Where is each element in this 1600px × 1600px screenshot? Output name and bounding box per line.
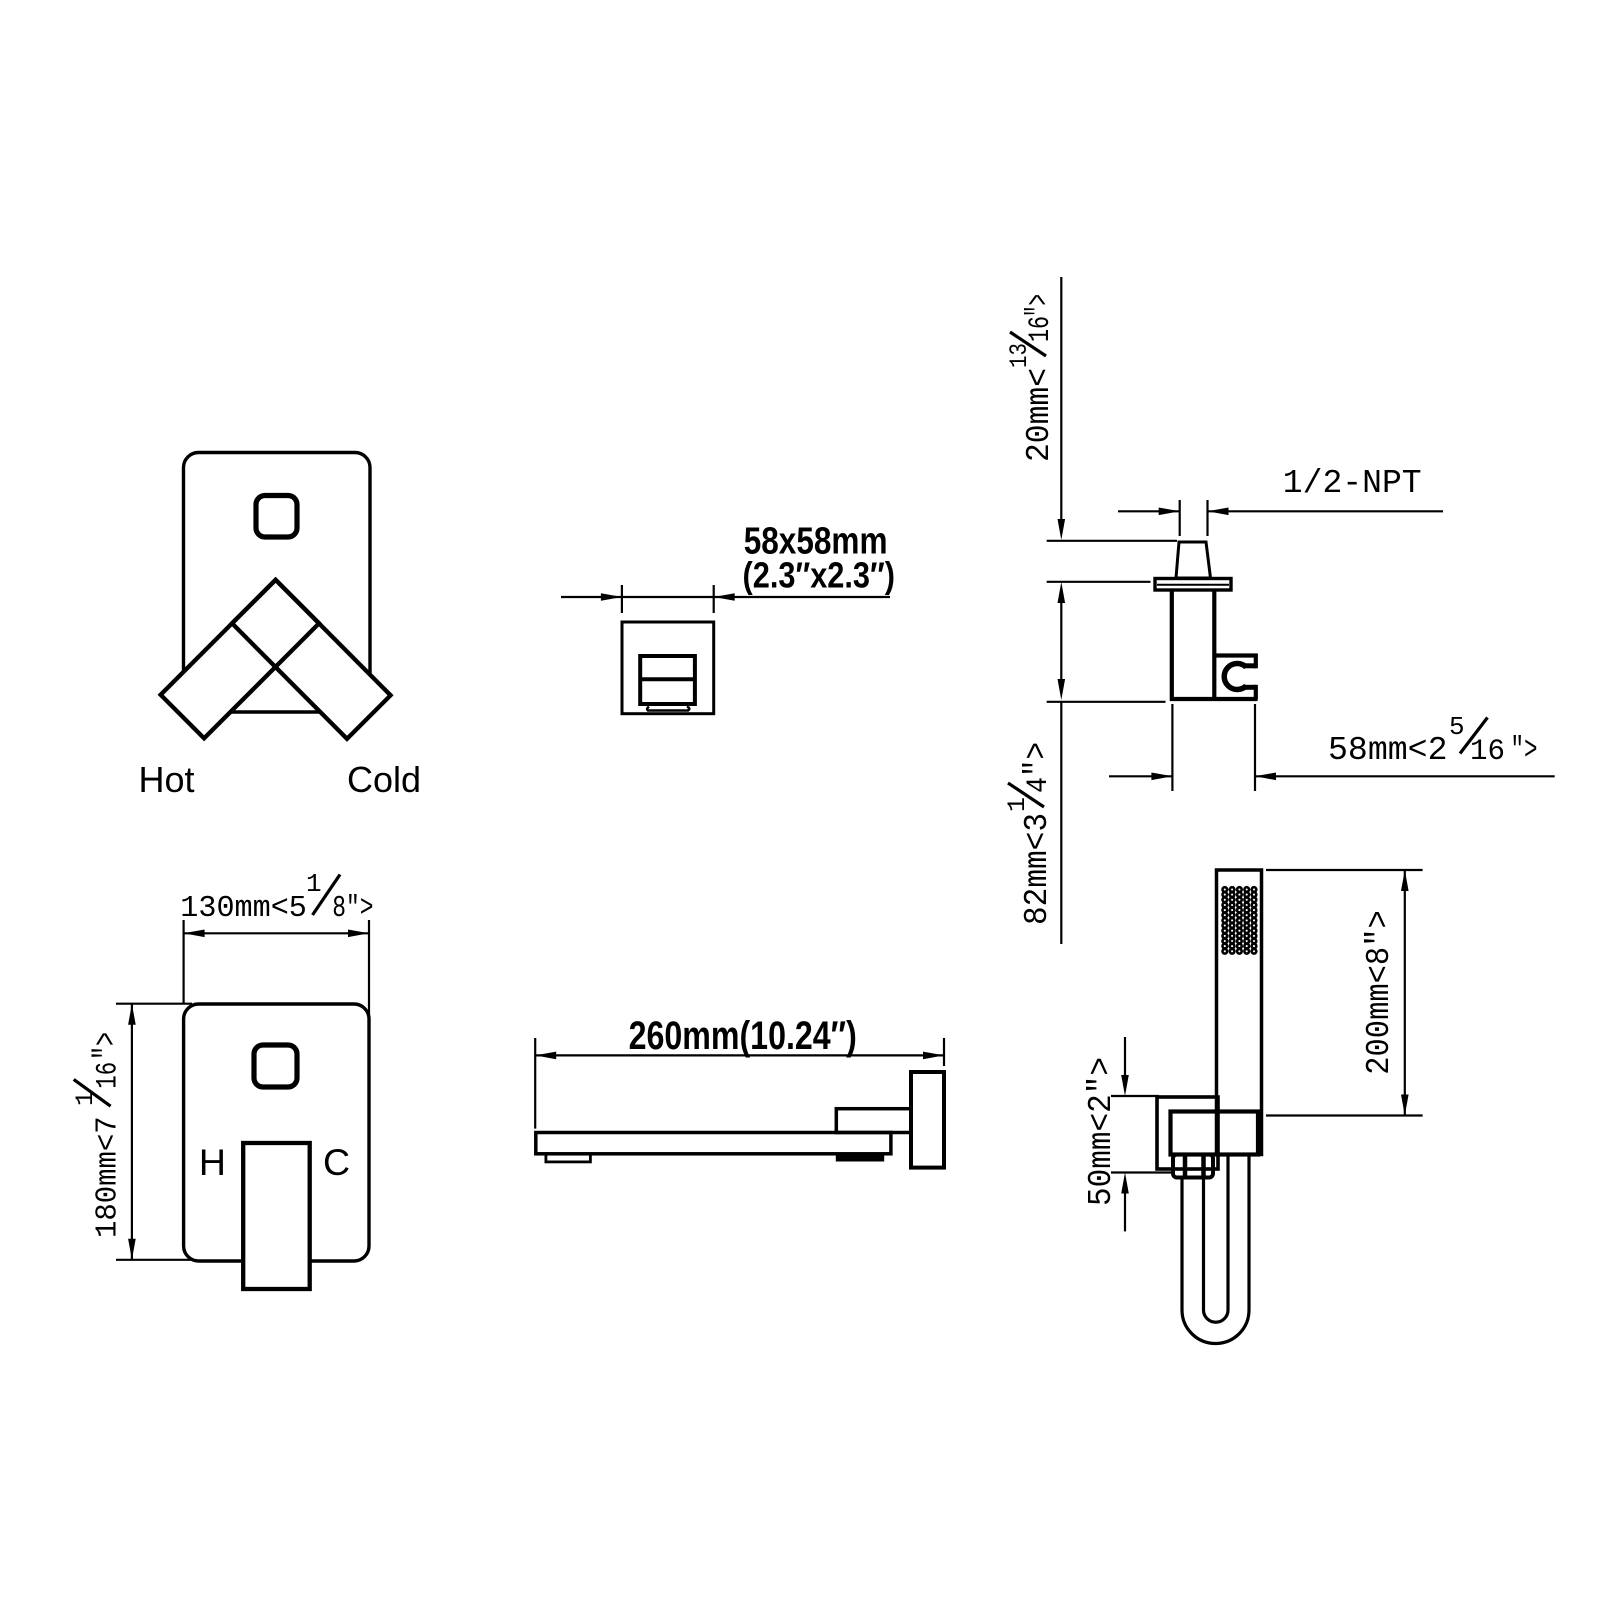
svg-text:1/2-NPT: 1/2-NPT [1283,465,1422,502]
svg-text:16: 16 [1470,735,1505,769]
svg-text:16: 16 [92,1062,126,1089]
svg-text:Hot: Hot [138,759,194,800]
svg-text:58mm<2: 58mm<2 [1328,732,1448,769]
svg-text:130mm<5: 130mm<5 [180,891,307,926]
svg-text:H: H [199,1141,226,1183]
svg-text:″>: ″> [1019,742,1056,777]
svg-text:260mm(10.24″): 260mm(10.24″) [629,1014,857,1058]
svg-text:1: 1 [1003,797,1032,812]
svg-text:16: 16 [1024,316,1058,342]
svg-text:8″>: 8″> [332,891,373,926]
svg-text:1: 1 [71,1091,100,1106]
svg-text:82mm<3: 82mm<3 [1019,813,1056,925]
svg-text:180mm<7: 180mm<7 [91,1116,126,1238]
svg-text:″>: ″> [1021,294,1058,317]
svg-text:20mm<: 20mm< [1021,368,1058,462]
svg-text:″>: ″> [89,1032,126,1060]
svg-text:200mm<8″>: 200mm<8″> [1361,910,1398,1075]
svg-text:1: 1 [306,869,322,899]
svg-text:C: C [323,1141,350,1183]
svg-text:5: 5 [1449,712,1465,742]
svg-text:Cold: Cold [347,759,421,800]
svg-text:4: 4 [1022,777,1056,793]
svg-text:50mm<2″>: 50mm<2″> [1083,1057,1120,1206]
svg-text:(2.3″x2.3″): (2.3″x2.3″) [743,555,896,596]
svg-text:″>: ″> [1511,732,1538,769]
